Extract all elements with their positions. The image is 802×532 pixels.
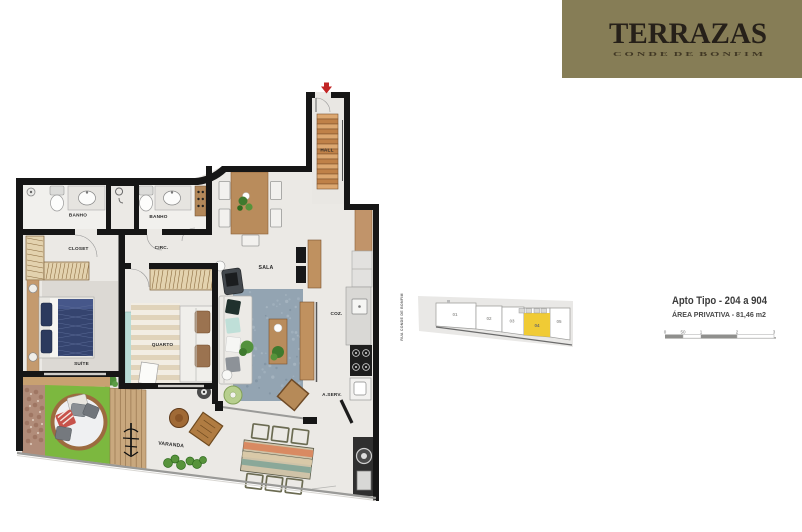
svg-text:SUÍTE: SUÍTE bbox=[74, 359, 89, 366]
svg-text:BANHO: BANHO bbox=[69, 213, 87, 218]
svg-text:05: 05 bbox=[556, 319, 562, 324]
svg-text:TERRAZAS: TERRAZAS bbox=[609, 17, 767, 50]
svg-text:BANHO: BANHO bbox=[149, 214, 167, 219]
svg-text:QUARTO: QUARTO bbox=[152, 342, 174, 347]
svg-text:Apto Tipo - 204 a 904: Apto Tipo - 204 a 904 bbox=[672, 295, 768, 307]
svg-text:02: 02 bbox=[486, 316, 492, 321]
svg-text:HALL: HALL bbox=[320, 148, 333, 153]
svg-text:ÁREA PRIVATIVA - 81,46 m2: ÁREA PRIVATIVA - 81,46 m2 bbox=[672, 310, 766, 319]
svg-text:04: 04 bbox=[534, 323, 540, 328]
svg-text:50: 50 bbox=[680, 330, 686, 335]
svg-text:CLOSET: CLOSET bbox=[68, 246, 88, 251]
svg-text:SALA: SALA bbox=[259, 265, 274, 271]
svg-text:01: 01 bbox=[452, 312, 458, 317]
svg-text:A.SERV.: A.SERV. bbox=[322, 392, 342, 397]
svg-text:COZ.: COZ. bbox=[331, 311, 343, 316]
svg-text:CIRC.: CIRC. bbox=[155, 245, 169, 250]
svg-text:03: 03 bbox=[509, 319, 515, 324]
svg-text:C O N D E D E B O N F I M: C O N D E D E B O N F I M bbox=[613, 51, 763, 58]
svg-text:RUA CONDE DE BONFIM: RUA CONDE DE BONFIM bbox=[400, 293, 404, 341]
